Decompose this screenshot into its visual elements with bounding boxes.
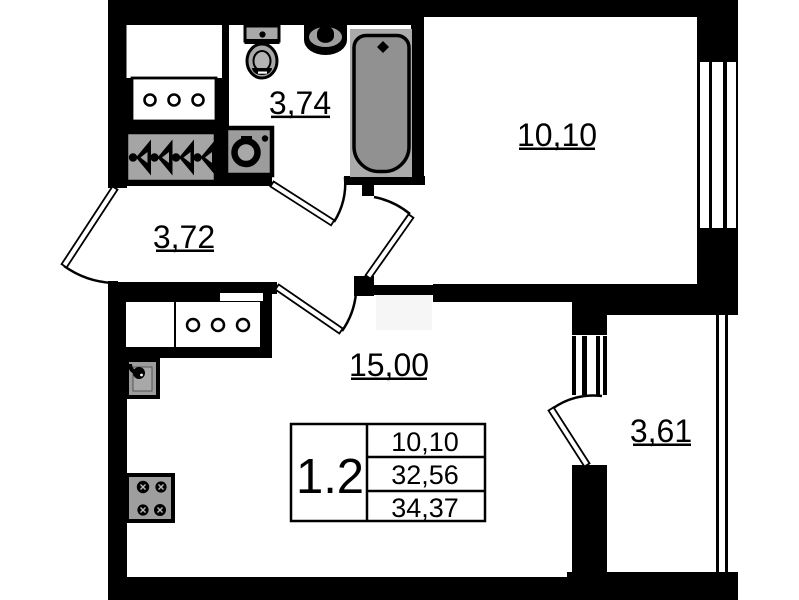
svg-text:1.2: 1.2 (296, 450, 364, 504)
svg-text:32,56: 32,56 (391, 460, 459, 490)
svg-text:10,10: 10,10 (391, 427, 459, 457)
svg-text:34,37: 34,37 (391, 493, 459, 523)
